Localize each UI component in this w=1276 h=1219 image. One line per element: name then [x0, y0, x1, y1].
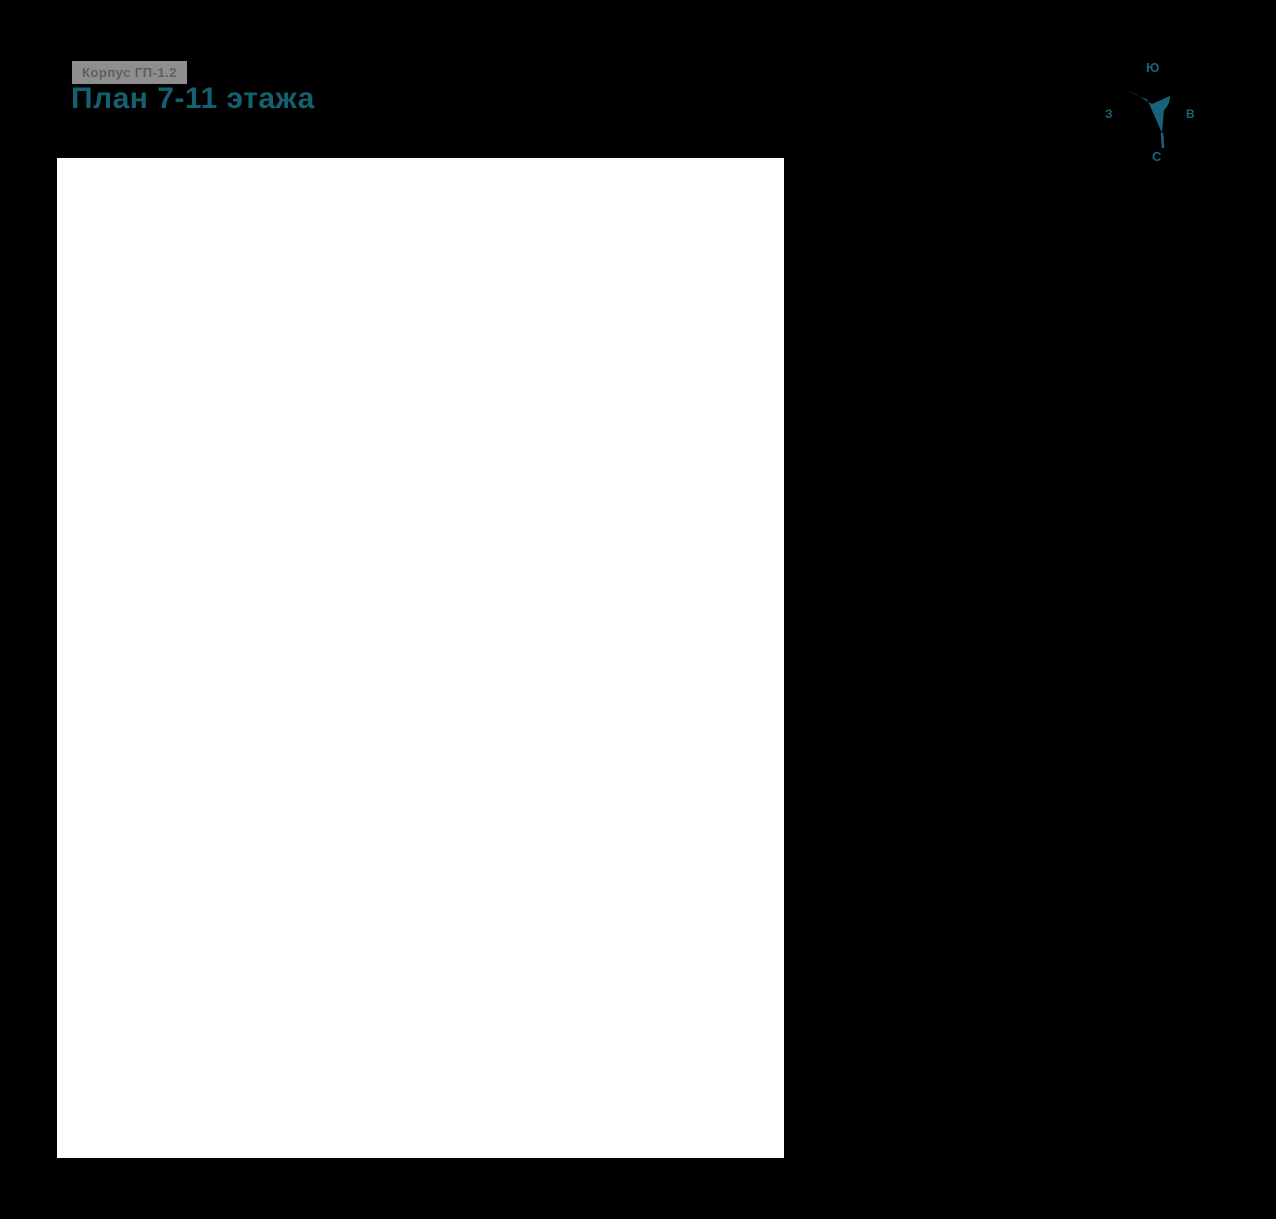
svg-text:С: С [1152, 149, 1162, 164]
svg-text:Ю: Ю [1146, 60, 1159, 75]
svg-text:В: В [1186, 107, 1195, 121]
svg-text:З: З [1105, 107, 1113, 121]
